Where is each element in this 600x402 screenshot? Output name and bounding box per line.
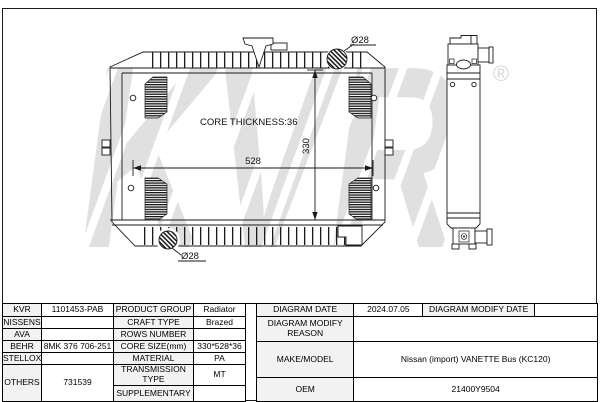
core-size-label: CORE SIZE(mm) xyxy=(114,341,194,353)
bottom-outlet-port xyxy=(159,231,177,249)
table-row: NISSENS CRAFT TYPE Brazed xyxy=(3,317,246,329)
filler-cap xyxy=(457,60,471,69)
diagram-date-value: 2024.07.05 xyxy=(354,304,423,317)
mounting-hole xyxy=(128,185,134,191)
table-row: OTHERS 731539 TRANSMISSION TYPE MT xyxy=(3,365,246,386)
core-size-value: 330*528*36 xyxy=(194,341,246,353)
diagram-modify-reason-label: DIAGRAM MODIFY REASON xyxy=(257,317,354,342)
catalog-page: { "watermark": { "text": "KVR", "registe… xyxy=(0,0,600,402)
bracket-top-left xyxy=(145,77,167,118)
stellox-part-number xyxy=(42,353,114,365)
bracket-bottom-right xyxy=(349,178,371,220)
right-frame-tab xyxy=(385,140,393,147)
craft-type-label: CRAFT TYPE xyxy=(114,317,194,329)
diagram-modify-reason-value xyxy=(354,317,598,342)
material-value: PA xyxy=(194,353,246,365)
product-group-value: Radiator xyxy=(194,304,246,317)
table-row: DIAGRAM MODIFY REASON xyxy=(257,317,598,342)
mounting-hole xyxy=(373,185,379,191)
left-frame-tab xyxy=(102,148,110,155)
registered-trademark-mark: ® xyxy=(493,61,509,86)
diagram-date-label: DIAGRAM DATE xyxy=(257,304,354,317)
behr-part-number: 8MK 376 706-251 xyxy=(42,341,114,353)
brand-kvr-label: KVR xyxy=(3,304,42,317)
transmission-type-value: MT xyxy=(194,365,246,386)
radiator-side-view xyxy=(447,36,493,250)
side-bottom-pipe xyxy=(475,231,487,243)
bracket-top-right xyxy=(349,77,371,118)
brand-stellox-label: STELLOX xyxy=(3,353,42,365)
brand-cross-reference-table: KVR 1101453-PAB PRODUCT GROUP Radiator N… xyxy=(2,303,246,402)
kvr-part-number: 1101453-PAB xyxy=(42,304,114,317)
diagram-modify-date-label: DIAGRAM MODIFY DATE xyxy=(423,304,534,317)
oem-label: OEM xyxy=(257,378,354,402)
supplementary-value xyxy=(194,386,246,402)
oem-value: 21400Y9504 xyxy=(354,378,598,402)
mounting-hole xyxy=(130,95,136,101)
core-width-dimension: 528 xyxy=(245,156,261,167)
product-group-label: PRODUCT GROUP xyxy=(114,304,194,317)
table-row: STELLOX MATERIAL PA xyxy=(3,353,246,365)
rows-number-value xyxy=(194,329,246,341)
bracket-bottom-left xyxy=(145,178,167,220)
brand-others-label: OTHERS xyxy=(3,365,42,402)
left-frame-tab xyxy=(102,140,110,147)
nissens-part-number xyxy=(42,317,114,329)
bottom-outlet-diameter-label: Ø28 xyxy=(181,251,199,262)
table-row: BEHR 8MK 376 706-251 CORE SIZE(mm) 330*5… xyxy=(3,341,246,353)
brand-ava-label: AVA xyxy=(3,329,42,341)
top-inlet-diameter-label: Ø28 xyxy=(351,35,369,46)
brand-nissens-label: NISSENS xyxy=(3,317,42,329)
core-height-dimension: 330 xyxy=(301,138,312,154)
table-row: KVR 1101453-PAB PRODUCT GROUP Radiator xyxy=(3,304,246,317)
table-row: DIAGRAM DATE 2024.07.05 DIAGRAM MODIFY D… xyxy=(257,304,598,317)
mounting-hole xyxy=(371,95,377,101)
diagram-info-table: DIAGRAM DATE 2024.07.05 DIAGRAM MODIFY D… xyxy=(256,303,598,402)
core-thickness-label: CORE THICKNESS:36 xyxy=(200,117,298,128)
side-top-pipe xyxy=(478,48,489,62)
table-row: MAKE/MODEL Nissan (import) VANETTE Bus (… xyxy=(257,342,598,378)
brand-behr-label: BEHR xyxy=(3,341,42,353)
rows-number-label: ROWS NUMBER xyxy=(114,329,194,341)
ava-part-number xyxy=(42,329,114,341)
diagram-modify-date-value xyxy=(534,304,597,317)
supplementary-label: SUPPLEMENTARY xyxy=(114,386,194,402)
table-row: AVA ROWS NUMBER xyxy=(3,329,246,341)
table-row: OEM 21400Y9504 xyxy=(257,378,598,402)
material-label: MATERIAL xyxy=(114,353,194,365)
transmission-type-label: TRANSMISSION TYPE xyxy=(114,365,194,386)
top-inlet-port xyxy=(327,49,347,69)
make-model-label: MAKE/MODEL xyxy=(257,342,354,378)
right-frame-tab xyxy=(385,148,393,155)
others-part-number: 731539 xyxy=(42,365,114,402)
make-model-value: Nissan (import) VANETTE Bus (KC120) xyxy=(354,342,598,378)
craft-type-value: Brazed xyxy=(194,317,246,329)
side-body xyxy=(447,73,480,228)
